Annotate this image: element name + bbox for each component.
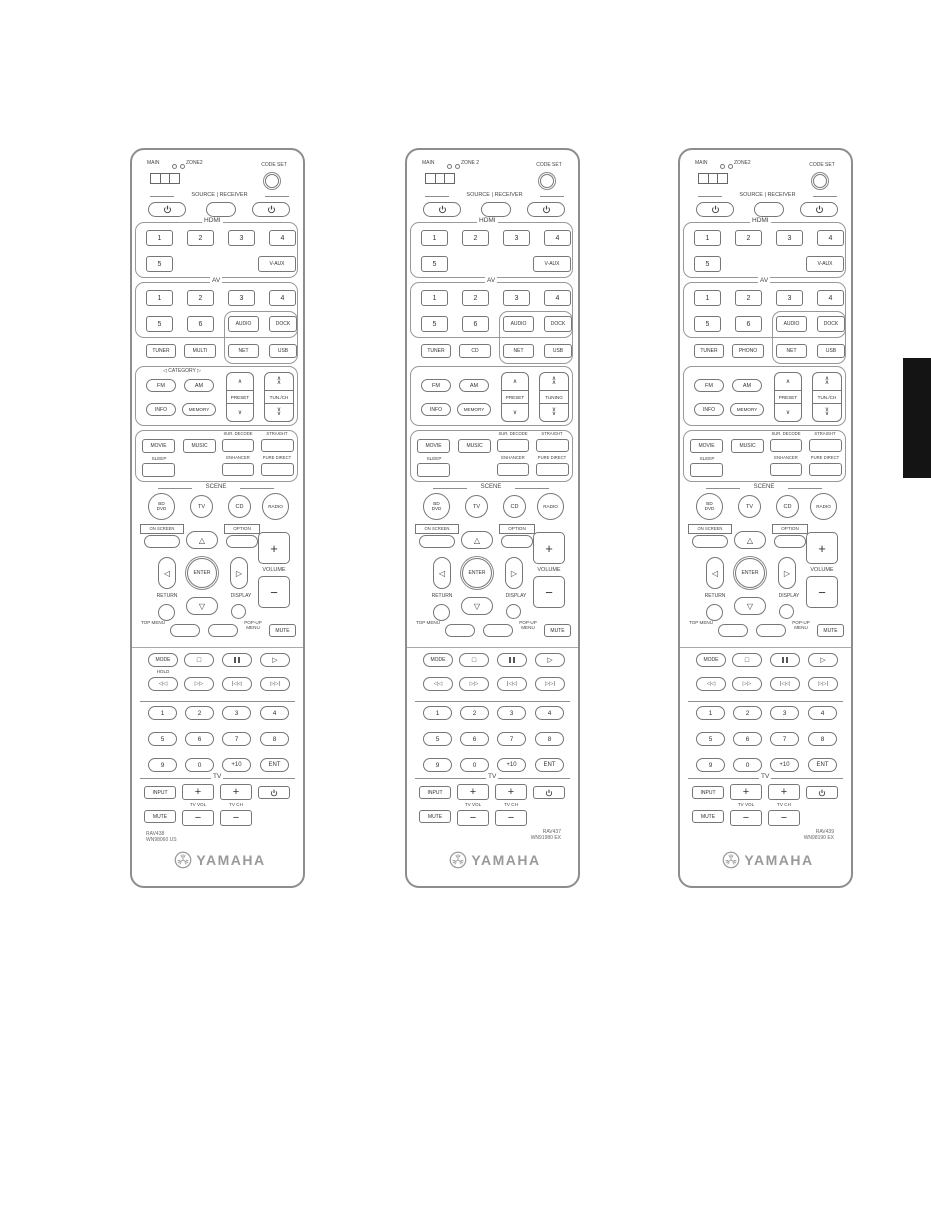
return-button[interactable]	[158, 604, 175, 621]
top-menu-button[interactable]	[718, 624, 748, 637]
v-aux-button[interactable]: V-AUX	[258, 256, 296, 272]
sleep-button[interactable]	[690, 463, 723, 477]
return-label: RETURN	[425, 594, 459, 600]
top-menu-button[interactable]	[170, 624, 200, 637]
hdmi-1-button[interactable]: 1	[421, 230, 448, 246]
audio-button[interactable]: AUDIO	[228, 316, 259, 332]
digit-1-button[interactable]: 1	[423, 706, 452, 720]
cursor-right-button[interactable]: ▷	[505, 557, 523, 589]
divider	[140, 701, 295, 702]
digit-8-button[interactable]: 8	[808, 732, 837, 746]
main-label: MAIN	[147, 161, 160, 167]
mode-button[interactable]: MODE	[148, 653, 178, 667]
mode-button[interactable]: MODE	[423, 653, 453, 667]
digit-5-button[interactable]: 5	[148, 732, 177, 746]
source-power-button[interactable]	[423, 202, 461, 217]
cursor-left-button[interactable]: ◁	[706, 557, 724, 589]
audio-button[interactable]: AUDIO	[503, 316, 534, 332]
cursor-right-button[interactable]: ▷	[778, 557, 796, 589]
receiver-power-button[interactable]	[252, 202, 290, 217]
cursor-down-button[interactable]: ▽	[186, 597, 218, 615]
main-zone-switch[interactable]	[425, 173, 455, 184]
play-button[interactable]: ▷	[260, 653, 290, 667]
tv-volume-down-button[interactable]: −	[457, 810, 489, 826]
option-button[interactable]	[226, 535, 258, 548]
hdmi-3-button[interactable]: 3	[776, 230, 803, 246]
volume-down-button[interactable]: −	[533, 576, 565, 608]
model-label: RAV438 WN98060 US	[146, 831, 216, 844]
music-button[interactable]: MUSIC	[458, 439, 491, 453]
preset-down-button[interactable]: ∨	[502, 404, 528, 421]
fm-button[interactable]: FM	[694, 379, 724, 392]
hdmi-3-button[interactable]: 3	[228, 230, 255, 246]
display-button[interactable]	[779, 604, 794, 619]
ent-button[interactable]: ENT	[808, 758, 837, 772]
divider	[698, 196, 722, 197]
hdmi-5-button[interactable]: 5	[421, 256, 448, 272]
sur-decode-button[interactable]	[497, 439, 529, 452]
hdmi-1-button[interactable]: 1	[694, 230, 721, 246]
dock-button[interactable]: DOCK	[544, 316, 572, 332]
tv-power-button[interactable]	[258, 786, 290, 799]
display-button[interactable]	[506, 604, 521, 619]
volume-up-button[interactable]: +	[533, 532, 565, 564]
digit-6-button[interactable]: 6	[185, 732, 214, 746]
source-select-button[interactable]	[754, 202, 784, 217]
am-button[interactable]: AM	[184, 379, 214, 392]
tuning-down-button[interactable]: ∨∨	[813, 404, 841, 421]
rewind-button[interactable]: ◁◁	[423, 677, 453, 691]
volume-down-button[interactable]: −	[258, 576, 290, 608]
tv-volume-down-button[interactable]: −	[730, 810, 762, 826]
return-button[interactable]	[433, 604, 450, 621]
enhancer-button[interactable]	[770, 463, 802, 476]
stop-button[interactable]: □	[459, 653, 489, 667]
second-input-button[interactable]: CD	[459, 344, 491, 358]
scene-radio-button[interactable]: RADIO	[262, 493, 289, 520]
music-button[interactable]: MUSIC	[183, 439, 216, 453]
av-2-button[interactable]: 2	[462, 290, 489, 306]
tv-mute-button[interactable]: MUTE	[144, 810, 176, 823]
digit-7-button[interactable]: 7	[222, 732, 251, 746]
scene-radio-button[interactable]: RADIO	[537, 493, 564, 520]
skip-back-button[interactable]: |◁◁	[770, 677, 800, 691]
digit-5-button[interactable]: 5	[423, 732, 452, 746]
divider	[813, 196, 837, 197]
receiver-power-button[interactable]	[800, 202, 838, 217]
digit-2-button[interactable]: 2	[733, 706, 762, 720]
hdmi-2-button[interactable]: 2	[735, 230, 762, 246]
digit-3-button[interactable]: 3	[222, 706, 251, 720]
net-button[interactable]: NET	[503, 344, 534, 358]
av-2-button[interactable]: 2	[187, 290, 214, 306]
digit-0-button[interactable]: 0	[185, 758, 214, 772]
movie-button[interactable]: MOVIE	[690, 439, 723, 453]
cursor-down-button[interactable]: ▽	[461, 597, 493, 615]
hdmi-2-button[interactable]: 2	[187, 230, 214, 246]
digit-2-button[interactable]: 2	[185, 706, 214, 720]
divider	[788, 488, 822, 489]
fm-button[interactable]: FM	[421, 379, 451, 392]
volume-up-button[interactable]: +	[806, 532, 838, 564]
dock-button[interactable]: DOCK	[269, 316, 297, 332]
digit-2-button[interactable]: 2	[460, 706, 489, 720]
preset-label: PRESET	[775, 390, 801, 404]
digit-3-button[interactable]: 3	[497, 706, 526, 720]
digit-9-button[interactable]: 9	[423, 758, 452, 772]
tv-input-button[interactable]: INPUT	[144, 786, 176, 799]
housing-seam	[680, 647, 851, 648]
sur-decode-button[interactable]	[222, 439, 254, 452]
fm-button[interactable]: FM	[146, 379, 176, 392]
model-number: RAV437	[543, 829, 561, 835]
usb-button[interactable]: USB	[544, 344, 572, 358]
enhancer-button[interactable]	[222, 463, 254, 476]
cursor-right-button[interactable]: ▷	[230, 557, 248, 589]
source-select-button[interactable]	[481, 202, 511, 217]
av-5-button[interactable]: 5	[146, 316, 173, 332]
info-button[interactable]: INFO	[421, 403, 451, 416]
info-button[interactable]: INFO	[146, 403, 176, 416]
preset-label: PRESET	[227, 390, 253, 404]
tuning-label: TUN./CH	[813, 390, 841, 404]
tv-ch-label: TV CH	[768, 802, 800, 807]
av-3-button[interactable]: 3	[776, 290, 803, 306]
digit-1-button[interactable]: 1	[148, 706, 177, 720]
am-button[interactable]: AM	[459, 379, 489, 392]
digit-1-button[interactable]: 1	[696, 706, 725, 720]
play-button[interactable]: ▷	[535, 653, 565, 667]
digit-4-button[interactable]: 4	[535, 706, 564, 720]
section-tab	[903, 358, 931, 478]
tuner-button[interactable]: TUNER	[146, 344, 176, 358]
av-6-button[interactable]: 6	[187, 316, 214, 332]
scene-bd-dvd-button[interactable]: BDDVD	[696, 493, 723, 520]
digit-4-button[interactable]: 4	[260, 706, 289, 720]
on-screen-button[interactable]	[419, 535, 455, 548]
ent-button[interactable]: ENT	[535, 758, 564, 772]
pure-direct-button[interactable]	[261, 463, 294, 476]
brand-wordmark: YAMAHA	[744, 852, 813, 868]
scene-tv-button[interactable]: TV	[738, 495, 761, 518]
on-screen-button[interactable]	[692, 535, 728, 548]
pause-button[interactable]	[497, 653, 527, 667]
tv-channel-up-button[interactable]: +	[220, 784, 252, 800]
scene-cd-button[interactable]: CD	[228, 495, 251, 518]
option-button[interactable]	[501, 535, 533, 548]
av-4-button[interactable]: 4	[269, 290, 296, 306]
hdmi-4-button[interactable]: 4	[269, 230, 296, 246]
on-screen-label: ON SCREEN	[688, 524, 732, 534]
pure-direct-label: PURE DIRECT	[804, 456, 846, 461]
housing-seam	[407, 647, 578, 648]
sur-decode-button[interactable]	[770, 439, 802, 452]
v-aux-button[interactable]: V-AUX	[533, 256, 571, 272]
straight-button[interactable]	[536, 439, 569, 452]
av-6-button[interactable]: 6	[462, 316, 489, 332]
tuning-down-button[interactable]: ∨∨	[265, 404, 293, 421]
second-input-button[interactable]: MULTI	[184, 344, 216, 358]
enter-button[interactable]: ENTER	[735, 558, 765, 588]
scene-bd-dvd-button[interactable]: BDDVD	[423, 493, 450, 520]
audio-button[interactable]: AUDIO	[776, 316, 807, 332]
tv-channel-up-button[interactable]: +	[768, 784, 800, 800]
pause-button[interactable]	[222, 653, 252, 667]
tuning-down-button[interactable]: ∨∨	[540, 404, 568, 421]
tv-power-button[interactable]	[533, 786, 565, 799]
scene-cd-button[interactable]: CD	[503, 495, 526, 518]
tv-mute-button[interactable]: MUTE	[692, 810, 724, 823]
plus10-button[interactable]: +10	[770, 758, 799, 772]
tv-volume-up-button[interactable]: +	[730, 784, 762, 800]
source-power-button[interactable]	[148, 202, 186, 217]
info-button[interactable]: INFO	[694, 403, 724, 416]
enter-button[interactable]: ENTER	[187, 558, 217, 588]
digit-0-button[interactable]: 0	[460, 758, 489, 772]
stop-button[interactable]: □	[184, 653, 214, 667]
preset-up-button[interactable]: ∧	[775, 373, 801, 390]
cursor-left-button[interactable]: ◁	[433, 557, 451, 589]
ent-button[interactable]: ENT	[260, 758, 289, 772]
divider	[415, 701, 570, 702]
straight-label: STRAIGHT	[533, 432, 571, 437]
av-2-button[interactable]: 2	[735, 290, 762, 306]
cursor-up-button[interactable]: △	[186, 531, 218, 549]
digit-8-button[interactable]: 8	[535, 732, 564, 746]
hdmi-2-button[interactable]: 2	[462, 230, 489, 246]
av-1-button[interactable]: 1	[694, 290, 721, 306]
volume-up-button[interactable]: +	[258, 532, 290, 564]
digit-4-button[interactable]: 4	[808, 706, 837, 720]
hdmi-5-button[interactable]: 5	[146, 256, 173, 272]
av-1-button[interactable]: 1	[146, 290, 173, 306]
digit-8-button[interactable]: 8	[260, 732, 289, 746]
straight-button[interactable]	[809, 439, 842, 452]
tv-power-button[interactable]	[806, 786, 838, 799]
scene-tv-button[interactable]: TV	[190, 495, 213, 518]
enhancer-button[interactable]	[497, 463, 529, 476]
skip-forward-button[interactable]: ▷▷|	[808, 677, 838, 691]
pure-direct-button[interactable]	[536, 463, 569, 476]
category-label: ◁ CATEGORY ▷	[140, 369, 224, 375]
hdmi-5-button[interactable]: 5	[694, 256, 721, 272]
remote-control: MAIN ZONE2 CODE SET SOURCE | RECEIVER HD…	[678, 148, 853, 888]
power-icon	[711, 205, 720, 214]
brand-wordmark: YAMAHA	[471, 852, 540, 868]
fast-forward-button[interactable]: ▷▷	[732, 677, 762, 691]
brand-wordmark: YAMAHA	[196, 852, 265, 868]
scene-label: SCENE	[471, 484, 511, 491]
am-button[interactable]: AM	[732, 379, 762, 392]
mute-button[interactable]: MUTE	[817, 624, 844, 637]
cursor-up-button[interactable]: △	[461, 531, 493, 549]
tv-vol-label: TV VOL	[457, 802, 489, 807]
plus10-button[interactable]: +10	[222, 758, 251, 772]
sur-decode-label: SUR. DECODE	[495, 432, 531, 437]
option-button[interactable]	[774, 535, 806, 548]
source-power-button[interactable]	[696, 202, 734, 217]
skip-forward-button[interactable]: ▷▷|	[260, 677, 290, 691]
skip-back-button[interactable]: |◁◁	[497, 677, 527, 691]
digit-9-button[interactable]: 9	[148, 758, 177, 772]
display-label: DISPLAY	[497, 594, 535, 600]
av-5-button[interactable]: 5	[421, 316, 448, 332]
tuning-up-button[interactable]: ∧∧	[265, 373, 293, 390]
power-icon	[438, 205, 447, 214]
play-button[interactable]: ▷	[808, 653, 838, 667]
av-1-button[interactable]: 1	[421, 290, 448, 306]
tuning-up-button[interactable]: ∧∧	[813, 373, 841, 390]
digit-5-button[interactable]: 5	[696, 732, 725, 746]
hdmi-1-button[interactable]: 1	[146, 230, 173, 246]
zone-indicator-dot	[455, 164, 460, 169]
music-button[interactable]: MUSIC	[731, 439, 764, 453]
main-zone-switch[interactable]	[698, 173, 728, 184]
divider	[158, 488, 192, 489]
cursor-up-button[interactable]: △	[734, 531, 766, 549]
tv-volume-down-button[interactable]: −	[182, 810, 214, 826]
av-5-button[interactable]: 5	[694, 316, 721, 332]
rewind-button[interactable]: ◁◁	[696, 677, 726, 691]
av-4-button[interactable]: 4	[817, 290, 844, 306]
fast-forward-button[interactable]: ▷▷	[184, 677, 214, 691]
sleep-button[interactable]	[142, 463, 175, 477]
tv-channel-up-button[interactable]: +	[495, 784, 527, 800]
tv-volume-up-button[interactable]: +	[182, 784, 214, 800]
scene-radio-button[interactable]: RADIO	[810, 493, 837, 520]
pure-direct-label: PURE DIRECT	[531, 456, 573, 461]
stop-button[interactable]: □	[732, 653, 762, 667]
mute-button[interactable]: MUTE	[269, 624, 296, 637]
net-button[interactable]: NET	[228, 344, 259, 358]
preset-up-button[interactable]: ∧	[227, 373, 253, 390]
digit-7-button[interactable]: 7	[497, 732, 526, 746]
rewind-button[interactable]: ◁◁	[148, 677, 178, 691]
digit-7-button[interactable]: 7	[770, 732, 799, 746]
code-set-button[interactable]	[813, 174, 827, 188]
dock-button[interactable]: DOCK	[817, 316, 845, 332]
usb-button[interactable]: USB	[817, 344, 845, 358]
memory-button[interactable]: MEMORY	[182, 403, 216, 416]
tuner-button[interactable]: TUNER	[694, 344, 724, 358]
memory-button[interactable]: MEMORY	[730, 403, 764, 416]
hdmi-4-button[interactable]: 4	[544, 230, 571, 246]
main-label: MAIN	[695, 161, 708, 167]
enter-button[interactable]: ENTER	[462, 558, 492, 588]
digit-3-button[interactable]: 3	[770, 706, 799, 720]
pure-direct-button[interactable]	[809, 463, 842, 476]
yamaha-emblem-icon	[449, 851, 467, 869]
divider	[688, 701, 843, 702]
receiver-power-button[interactable]	[527, 202, 565, 217]
movie-button[interactable]: MOVIE	[417, 439, 450, 453]
tuning-up-button[interactable]: ∧∧	[540, 373, 568, 390]
preset-down-button[interactable]: ∨	[227, 404, 253, 421]
zone-indicator-dot	[728, 164, 733, 169]
cursor-down-button[interactable]: ▽	[734, 597, 766, 615]
av-6-button[interactable]: 6	[735, 316, 762, 332]
preset-down-button[interactable]: ∨	[775, 404, 801, 421]
digit-9-button[interactable]: 9	[696, 758, 725, 772]
av-3-button[interactable]: 3	[228, 290, 255, 306]
v-aux-button[interactable]: V-AUX	[806, 256, 844, 272]
tv-channel-down-button[interactable]: −	[768, 810, 800, 826]
on-screen-button[interactable]	[144, 535, 180, 548]
tuner-button[interactable]: TUNER	[421, 344, 451, 358]
code-set-button[interactable]	[265, 174, 279, 188]
fast-forward-button[interactable]: ▷▷	[459, 677, 489, 691]
memory-button[interactable]: MEMORY	[457, 403, 491, 416]
second-input-button[interactable]: PHONO	[732, 344, 764, 358]
tv-channel-down-button[interactable]: −	[495, 810, 527, 826]
tv-input-button[interactable]: INPUT	[692, 786, 724, 799]
straight-button[interactable]	[261, 439, 294, 452]
skip-back-button[interactable]: |◁◁	[222, 677, 252, 691]
pure-direct-label: PURE DIRECT	[256, 456, 298, 461]
hdmi-4-button[interactable]: 4	[817, 230, 844, 246]
code-set-button[interactable]	[540, 174, 554, 188]
net-button[interactable]: NET	[776, 344, 807, 358]
popup-menu-button[interactable]	[756, 624, 786, 637]
tv-section-label: TV	[211, 773, 223, 780]
return-button[interactable]	[706, 604, 723, 621]
straight-label: STRAIGHT	[258, 432, 296, 437]
scene-cd-button[interactable]: CD	[776, 495, 799, 518]
digit-6-button[interactable]: 6	[733, 732, 762, 746]
preset-up-button[interactable]: ∧	[502, 373, 528, 390]
sleep-button[interactable]	[417, 463, 450, 477]
scene-bd-dvd-button[interactable]: BDDVD	[148, 493, 175, 520]
top-menu-label: TOP MENU	[688, 620, 714, 625]
tv-mute-button[interactable]: MUTE	[419, 810, 451, 823]
cursor-left-button[interactable]: ◁	[158, 557, 176, 589]
display-button[interactable]	[231, 604, 246, 619]
scene-tv-button[interactable]: TV	[465, 495, 488, 518]
skip-forward-button[interactable]: ▷▷|	[535, 677, 565, 691]
source-select-button[interactable]	[206, 202, 236, 217]
mute-button[interactable]: MUTE	[544, 624, 571, 637]
tv-volume-up-button[interactable]: +	[457, 784, 489, 800]
enhancer-label: ENHANCER	[220, 456, 256, 461]
popup-menu-button[interactable]	[208, 624, 238, 637]
top-menu-button[interactable]	[445, 624, 475, 637]
tv-channel-down-button[interactable]: −	[220, 810, 252, 826]
model-code: WN98190 EX	[804, 835, 834, 841]
preset-label: PRESET	[502, 390, 528, 404]
option-label: OPTION	[224, 524, 260, 534]
top-menu-label: TOP MENU	[415, 620, 441, 625]
hdmi-3-button[interactable]: 3	[503, 230, 530, 246]
movie-button[interactable]: MOVIE	[142, 439, 175, 453]
popup-menu-button[interactable]	[483, 624, 513, 637]
tv-input-button[interactable]: INPUT	[419, 786, 451, 799]
usb-button[interactable]: USB	[269, 344, 297, 358]
volume-down-button[interactable]: −	[806, 576, 838, 608]
preset-rocker: ∧ PRESET ∨	[774, 372, 802, 422]
hdmi-group-label: HDMI	[202, 217, 223, 224]
av-4-button[interactable]: 4	[544, 290, 571, 306]
pause-button[interactable]	[770, 653, 800, 667]
av-3-button[interactable]: 3	[503, 290, 530, 306]
av-group-label: AV	[485, 277, 497, 284]
digit-0-button[interactable]: 0	[733, 758, 762, 772]
main-zone-switch[interactable]	[150, 173, 180, 184]
source-receiver-label: SOURCE | RECEIVER	[172, 192, 267, 198]
plus10-button[interactable]: +10	[497, 758, 526, 772]
mode-button[interactable]: MODE	[696, 653, 726, 667]
preset-rocker: ∧ PRESET ∨	[501, 372, 529, 422]
digit-6-button[interactable]: 6	[460, 732, 489, 746]
